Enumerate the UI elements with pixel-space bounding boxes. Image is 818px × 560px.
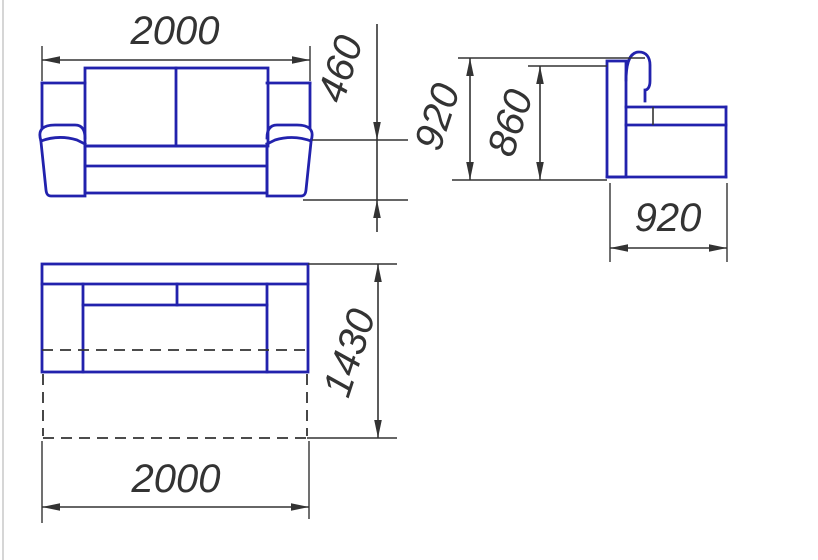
front-seat-base [85,146,267,193]
plan-view: 1430 2000 [42,264,397,523]
front-left-armrest-roll-underline [41,138,85,145]
plan-unfolded-depth-dimension: 1430 [307,264,397,438]
front-right-armrest [267,83,312,196]
side-view: 920 860 920 [406,52,727,262]
plan-unfolded-depth-label: 1430 [315,304,384,402]
front-right-armrest-roll-underline [267,138,311,145]
side-backrest [607,61,626,177]
front-left-armrest-body [41,142,85,196]
side-depth-label: 920 [635,196,702,240]
arrow-right [291,503,309,511]
side-view-sofa-outline [607,52,726,177]
plan-width-label: 2000 [131,457,221,501]
side-back-height-dimension: 860 [479,66,607,180]
arrow-down [466,162,474,180]
arrow-up [374,264,382,282]
side-back-height-label: 860 [479,84,541,161]
side-overall-height-label: 920 [406,78,468,155]
front-seat-height-label: 460 [309,30,371,107]
arrow-left [42,503,60,511]
arrow-down [373,122,381,140]
arrow-up [536,66,544,84]
plan-width-dimension: 2000 [42,441,309,523]
arrow-down [374,420,382,438]
front-left-armrest [40,83,85,196]
sofa-dimension-drawing-canvas: 2000 460 [0,0,818,560]
front-view-sofa-outline [40,68,312,196]
front-right-armrest-body [267,142,311,196]
technical-drawing: 2000 460 [0,0,818,560]
side-depth-dimension: 920 [610,183,727,262]
plan-view-sofa-outline [42,264,308,372]
front-view: 2000 460 [40,9,408,232]
arrow-left [42,56,60,64]
arrow-right [292,56,310,64]
arrow-up [466,58,474,76]
arrow-right [709,244,727,252]
arrow-up [373,200,381,218]
side-backrest-pillow-curl [626,52,650,101]
front-seat-height-dimension: 460 [303,24,408,232]
arrow-left [610,244,628,252]
arrow-down [536,162,544,180]
front-width-label: 2000 [130,9,220,53]
